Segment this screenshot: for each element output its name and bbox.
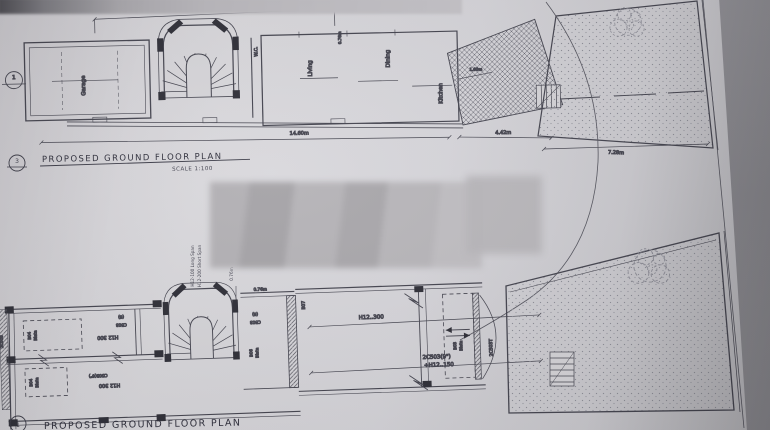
b04-lower-label2: Blata bbox=[34, 377, 39, 388]
h12-upper-label: H12 300 bbox=[97, 334, 118, 341]
main-slab-walls bbox=[295, 283, 486, 395]
c503-hall-size: (6) bbox=[252, 312, 258, 317]
top-title-block: 3 PROPOSED GROUND FLOOR PLAN SCALE 1:100 bbox=[7, 151, 250, 175]
b03-label2: Blata bbox=[458, 340, 463, 351]
floor-plan-linework: Garage 1 4.56m 0.76m W.C. bbox=[0, 0, 770, 430]
dim-garden-label: 7.28m bbox=[608, 150, 624, 157]
dim-vertical-label: 0.76m bbox=[229, 267, 234, 280]
b07-label: B07 bbox=[301, 301, 307, 310]
wc-label: W.C. bbox=[253, 47, 259, 57]
b04-upper-label: B04 bbox=[27, 331, 32, 339]
edge-beam-label: 2C503 bbox=[0, 335, 4, 349]
top-title-scale: SCALE 1:100 bbox=[172, 166, 213, 173]
spiral-staircase-top bbox=[157, 18, 240, 100]
facade-line bbox=[67, 109, 463, 137]
photo-of-floor-plan-drawing: { "titles": { "top": { "marker": "3", "t… bbox=[0, 0, 770, 430]
b03-label: B03 bbox=[452, 341, 457, 349]
rebar-note-line1: H12-100 Long Span bbox=[190, 245, 195, 287]
b06-label2: Blata bbox=[254, 347, 259, 358]
bottom-back-yard bbox=[506, 231, 740, 413]
top-back-yard: 7.28m bbox=[538, 0, 718, 156]
dim-stair-label: 4.56m bbox=[300, 3, 316, 9]
b04-upper-label2: Blata bbox=[32, 330, 37, 341]
dim-hall-label: 0.76m bbox=[253, 286, 267, 291]
section-marker-number: 1 bbox=[12, 75, 16, 81]
dim-length-label: 14.60m bbox=[290, 130, 309, 136]
rebar-note-line2: H12-200 Short Span bbox=[197, 244, 202, 287]
bottom-title-block: 1 PROPOSED GROUND FLOOR PLAN bbox=[10, 416, 241, 430]
bottom-floor-plan: 2C503 B04 Blata B04 Blata H12 300 H12 30… bbox=[0, 271, 545, 430]
dim-rear-label: 4.42m bbox=[495, 130, 511, 136]
b04-lower-label: B04 bbox=[28, 378, 33, 386]
bottom-title-marker: 1 bbox=[16, 422, 20, 429]
mesh-label: H12..300 bbox=[359, 314, 385, 321]
garage-label: Garage bbox=[81, 75, 87, 96]
beam-label: 2C503(9") bbox=[423, 354, 451, 361]
dining-label: Dining bbox=[385, 50, 391, 68]
c503-upper-label: C503 bbox=[116, 322, 127, 327]
beam-label2: +H12..150 bbox=[424, 362, 454, 369]
c503-mid-label: C503(6") bbox=[88, 373, 107, 379]
dim-strip-label: 1.60m bbox=[469, 67, 482, 72]
b06-label: B06 bbox=[248, 349, 253, 357]
rebar-note: H12-100 Long Span H12-200 Short Span 0.7… bbox=[190, 244, 236, 300]
living-label: Living bbox=[308, 60, 314, 76]
top-title-marker: 3 bbox=[15, 158, 19, 165]
hall-walls bbox=[240, 291, 298, 389]
dim-length bbox=[39, 131, 451, 148]
kitchen-label: Kitchen bbox=[438, 83, 444, 104]
yard-steps bbox=[550, 352, 574, 386]
beam-right-label: 2C503T bbox=[488, 339, 495, 357]
spiral-staircase-bottom bbox=[162, 281, 240, 362]
top-floor-plan: Garage 1 4.56m 0.76m W.C. bbox=[0, 0, 563, 152]
h12-lower-label: H12 300 bbox=[99, 382, 120, 389]
c503-upper-size: (6) bbox=[118, 314, 124, 319]
garage-room bbox=[24, 40, 151, 121]
c503-hall-label: C503 bbox=[249, 320, 260, 325]
open-plan-room bbox=[261, 28, 459, 125]
